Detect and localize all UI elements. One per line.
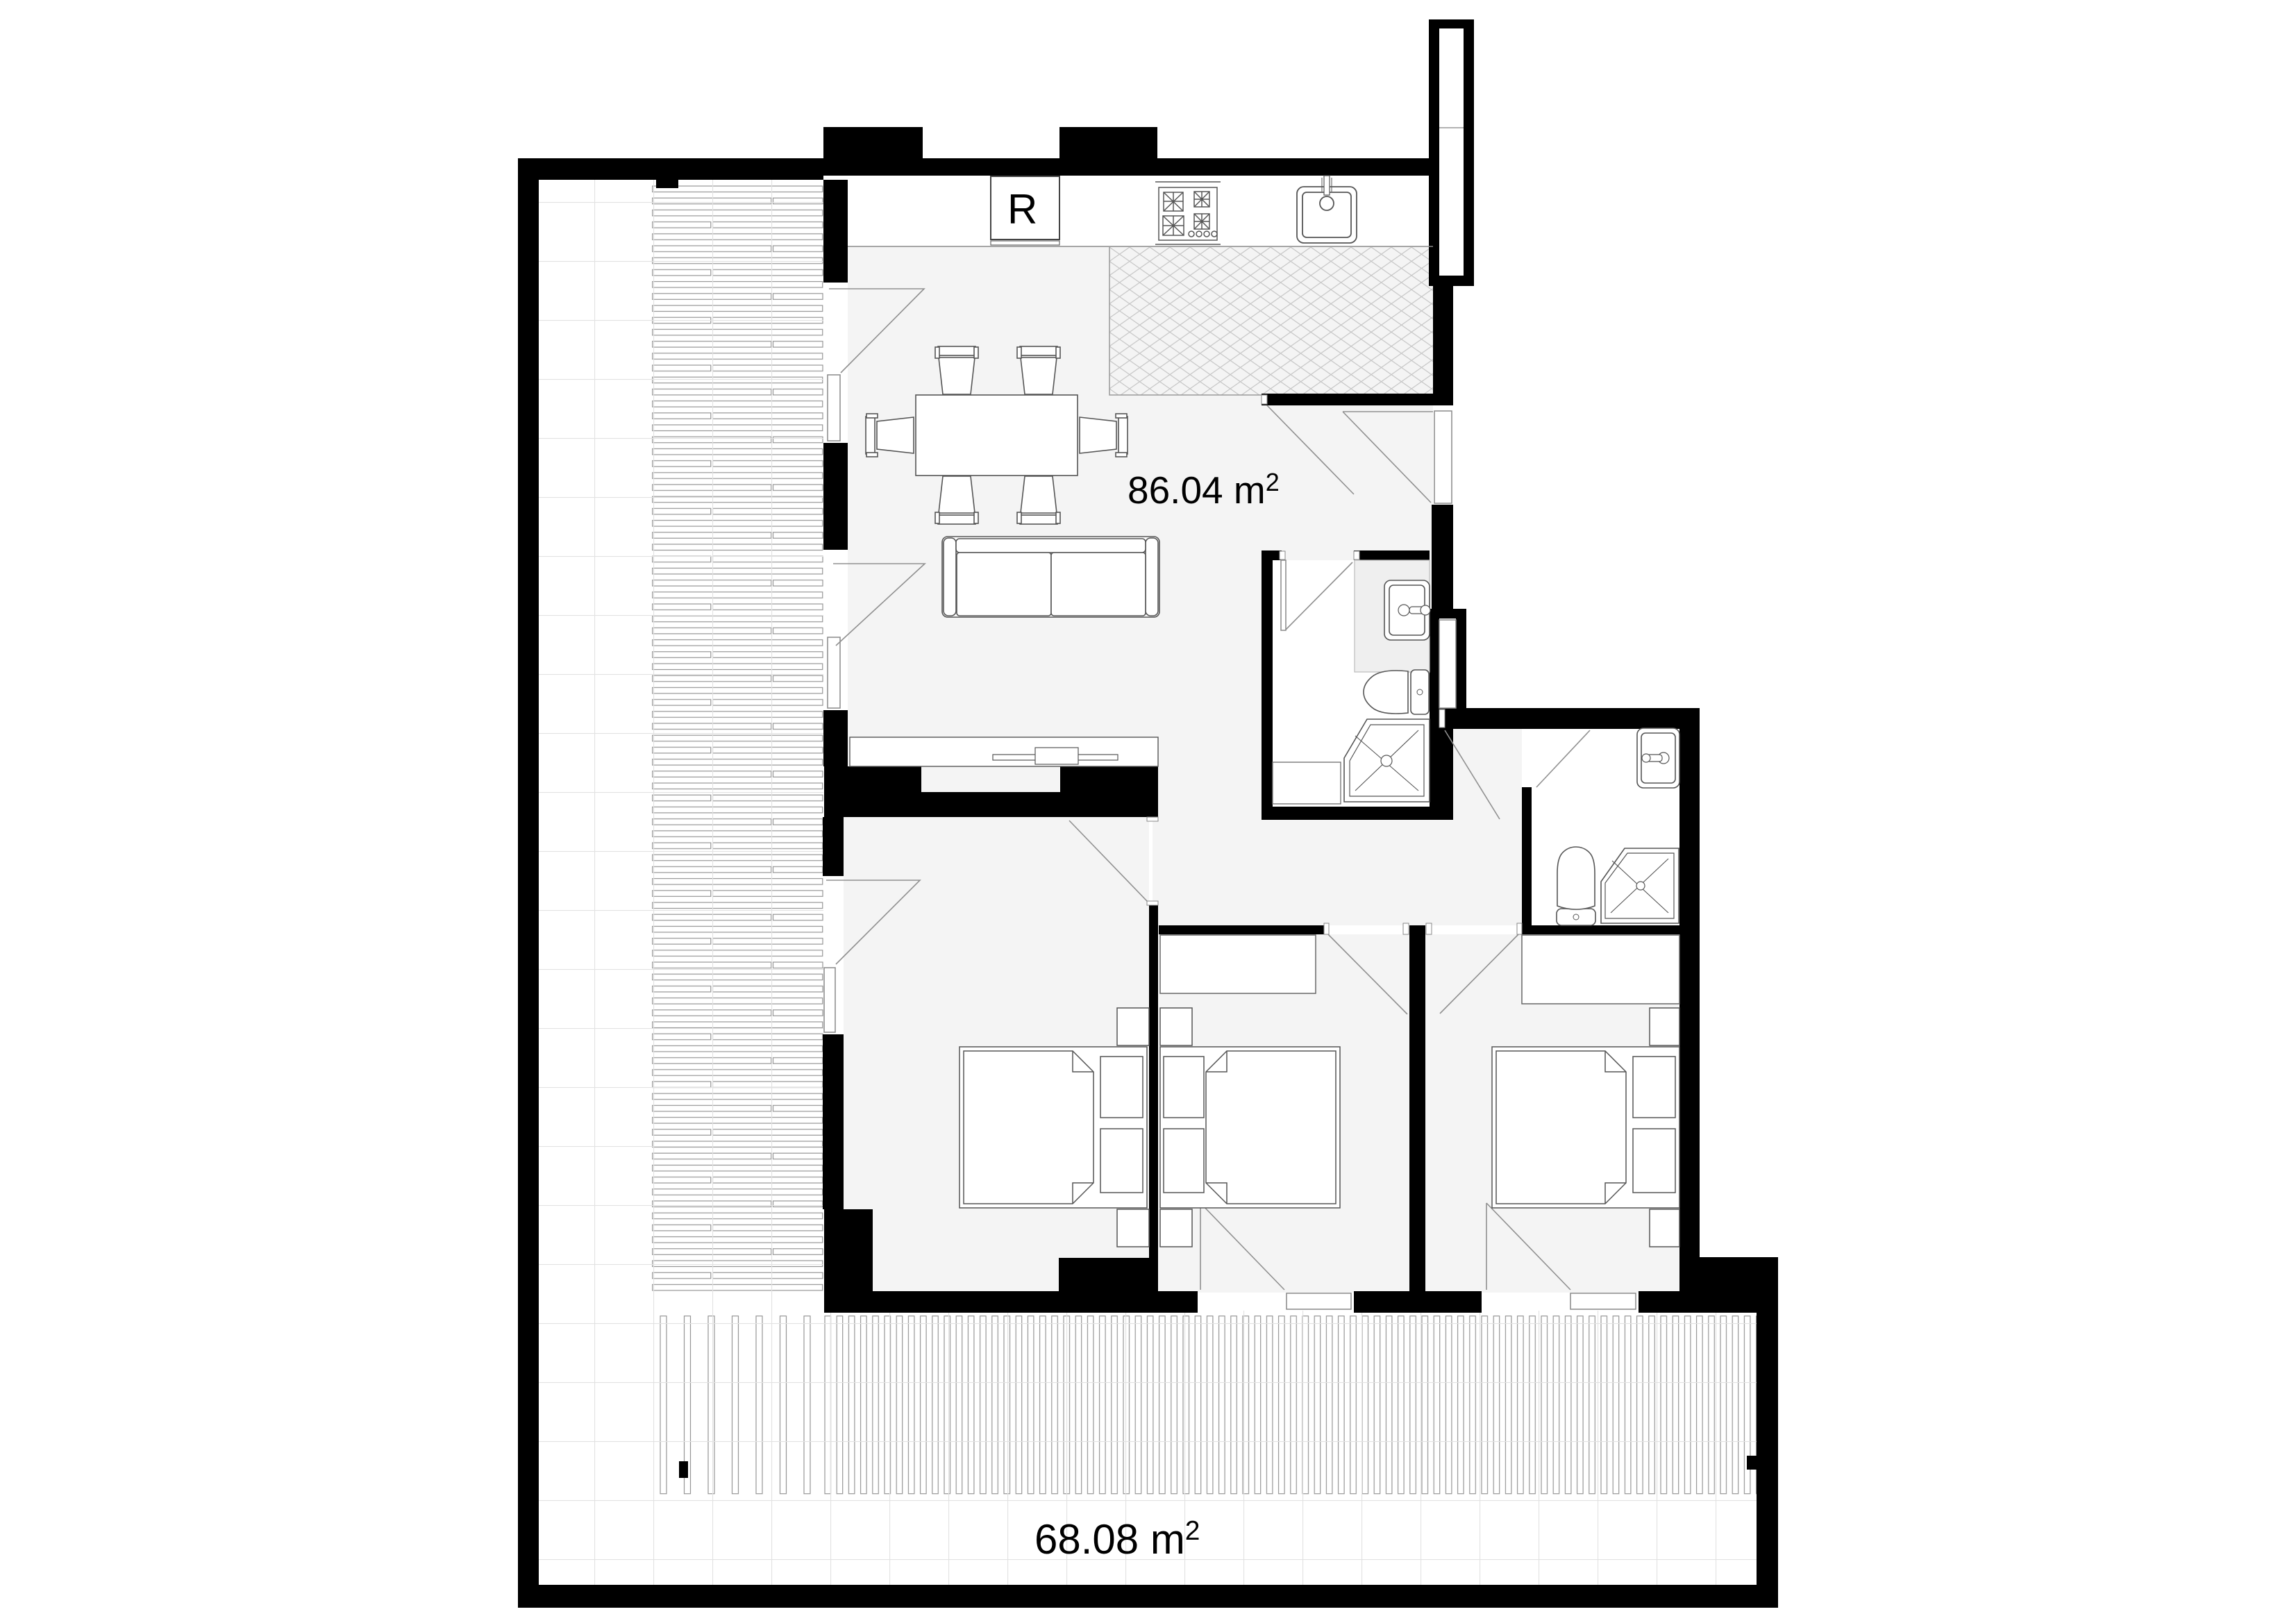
- svg-text:86.04 m2: 86.04 m2: [1128, 468, 1280, 512]
- svg-text:R: R: [1007, 186, 1037, 233]
- svg-text:68.08 m2: 68.08 m2: [1034, 1516, 1200, 1563]
